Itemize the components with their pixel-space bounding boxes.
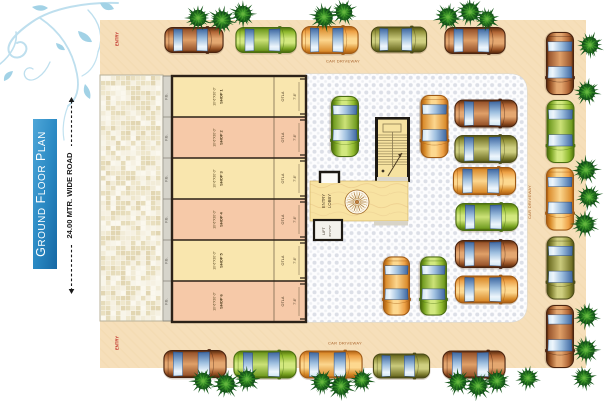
svg-text:CAR DRIVEWAY: CAR DRIVEWAY [326, 59, 360, 64]
svg-text:4'6"X7'0": 4'6"X7'0" [328, 225, 332, 237]
svg-text:LOBBY: LOBBY [327, 194, 332, 208]
svg-text:SHOP 4: SHOP 4 [219, 211, 224, 226]
svg-text:ENTRY: ENTRY [321, 194, 326, 208]
svg-text:F.B.: F.B. [165, 216, 169, 222]
svg-text:LIFT: LIFT [322, 227, 326, 235]
svg-text:7'-6": 7'-6" [293, 175, 297, 181]
svg-text:OTLA: OTLA [281, 296, 285, 306]
svg-text:10'-6"X30'-0": 10'-6"X30'-0" [213, 210, 217, 228]
svg-text:F.B.: F.B. [165, 134, 169, 140]
svg-text:CAR DRIVEWAY: CAR DRIVEWAY [328, 341, 362, 346]
svg-text:F.B.: F.B. [165, 298, 169, 304]
svg-text:F.B.: F.B. [165, 175, 169, 181]
svg-text:OTLA: OTLA [281, 255, 285, 265]
svg-text:10'-6"X30'-0": 10'-6"X30'-0" [213, 251, 217, 269]
svg-text:7'-6": 7'-6" [293, 93, 297, 99]
svg-text:10'-6"X30'-0": 10'-6"X30'-0" [213, 169, 217, 187]
svg-text:SHOP 3: SHOP 3 [219, 170, 224, 185]
svg-text:SHOP 5: SHOP 5 [219, 252, 224, 267]
svg-text:CAR DRIVEWAY: CAR DRIVEWAY [527, 185, 532, 219]
svg-text:GROUND FLOOR PLAN: GROUND FLOOR PLAN [34, 131, 48, 257]
svg-text:7'-6": 7'-6" [293, 134, 297, 140]
svg-text:F.B.: F.B. [165, 257, 169, 263]
svg-text:7'-6": 7'-6" [293, 216, 297, 222]
svg-text:10'-6"X30'-0": 10'-6"X30'-0" [213, 128, 217, 146]
svg-text:OTLA: OTLA [281, 173, 285, 183]
svg-text:F.B.: F.B. [165, 93, 169, 99]
svg-text:7'-6": 7'-6" [293, 298, 297, 304]
svg-text:24.00 MTR. WIDE ROAD: 24.00 MTR. WIDE ROAD [65, 152, 74, 239]
svg-text:OTLA: OTLA [281, 132, 285, 142]
svg-text:OTLA: OTLA [281, 91, 285, 101]
svg-text:10'-6"X30'-0": 10'-6"X30'-0" [213, 292, 217, 310]
svg-text:SHOP 2: SHOP 2 [219, 129, 224, 144]
svg-text:ENTRY: ENTRY [115, 32, 120, 46]
svg-text:10'-6"X30'-0": 10'-6"X30'-0" [213, 87, 217, 105]
svg-text:OTLA: OTLA [281, 214, 285, 224]
svg-text:SHOP 6: SHOP 6 [219, 293, 224, 308]
svg-text:7'-6": 7'-6" [293, 257, 297, 263]
svg-text:SHOP 1: SHOP 1 [219, 88, 224, 103]
svg-text:ENTRY: ENTRY [115, 336, 120, 350]
